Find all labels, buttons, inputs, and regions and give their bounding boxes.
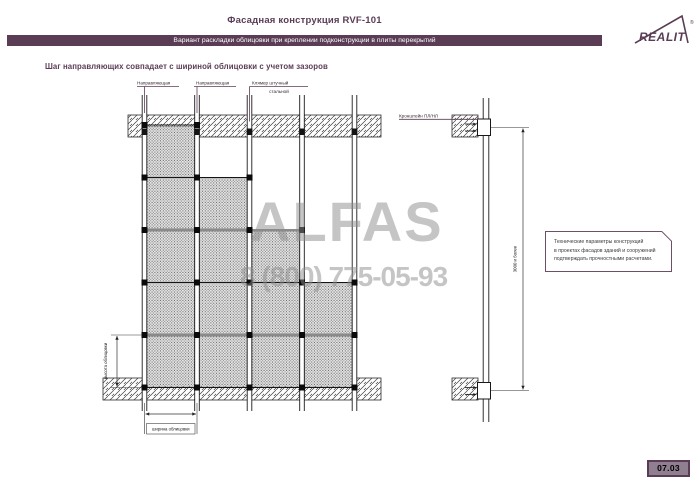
bracket-mark <box>299 129 305 136</box>
rail <box>352 95 357 411</box>
width-dimension-label: ширина облицовки <box>152 427 190 432</box>
section-dimension-label: 3000 и более <box>513 245 518 272</box>
height-dimension-label: высота облицовки <box>103 342 108 379</box>
rail <box>195 95 200 411</box>
clamp-label-line2: стальной <box>269 88 289 94</box>
cladding-panel <box>200 336 248 386</box>
clamp-mark <box>247 385 253 391</box>
bracket <box>478 383 491 400</box>
watermark-phone: 8 (800) 775-05-93 <box>240 263 447 291</box>
watermark-name: ALFAS <box>250 194 444 250</box>
section-slab-top <box>452 115 478 137</box>
catalog-page: { "header": { "title": "Фасадная констру… <box>0 0 700 498</box>
bracket-mark <box>194 129 200 136</box>
bracket-label: Кронштейн ПЛ/НЛ <box>399 112 438 118</box>
width-dimension: ширина облицовки <box>145 403 198 434</box>
clamp-mark <box>194 280 200 286</box>
cladding-panel <box>252 336 300 386</box>
clamp-mark <box>142 227 148 233</box>
page-number-badge: 07.03 <box>647 460 690 477</box>
clamp-mark <box>142 385 148 391</box>
note-box-inner: Технические параметры конструкций в прое… <box>546 232 671 271</box>
clamp-mark <box>194 227 200 233</box>
clamp-mark <box>247 332 253 338</box>
rail <box>300 95 305 411</box>
clamp-mark <box>194 122 200 128</box>
clamp-mark <box>142 280 148 286</box>
rail-label-left: Направляющая <box>137 81 171 86</box>
clamp-mark <box>142 332 148 338</box>
note-line: Технические параметры конструкций <box>554 238 671 247</box>
clamp-mark <box>142 175 148 181</box>
note-line: в проектах фасадов зданий и сооружений <box>554 247 671 256</box>
cladding-panel <box>200 179 248 229</box>
bracket <box>478 119 491 136</box>
cladding-panel <box>147 336 195 386</box>
clamp-mark <box>299 332 305 338</box>
clamp-mark <box>194 175 200 181</box>
section-slab-bottom <box>452 378 478 400</box>
elevation-drawing: НаправляющаяНаправляющаяКлямер штучныйст… <box>103 80 381 435</box>
section-dimension: 3000 и более <box>491 128 529 391</box>
section-drawing: Кронштейн ПЛ/НЛ3000 и более <box>399 98 529 422</box>
bracket-mark <box>352 129 358 136</box>
clamp-mark <box>352 332 358 338</box>
bracket-mark <box>142 129 148 136</box>
clamp-mark <box>299 385 305 391</box>
cladding-panel <box>147 284 195 334</box>
rail-label-right: Направляющая <box>196 81 230 86</box>
clamp-mark <box>194 385 200 391</box>
cladding-panel <box>305 336 353 386</box>
cladding-panel <box>147 179 195 229</box>
cladding-panel <box>147 231 195 281</box>
note-box: Технические параметры конструкций в прое… <box>545 231 672 272</box>
bracket-mark <box>247 129 253 136</box>
rail <box>142 95 147 411</box>
rail <box>247 95 252 411</box>
note-line: подтверждать прочностными расчетами. <box>554 255 671 264</box>
clamp-mark <box>247 175 253 181</box>
clamp-mark <box>194 332 200 338</box>
cladding-panel <box>147 126 195 176</box>
clamp-mark <box>142 122 148 128</box>
clamp-label: Клямер штучный <box>252 80 289 86</box>
clamp-mark <box>352 385 358 391</box>
